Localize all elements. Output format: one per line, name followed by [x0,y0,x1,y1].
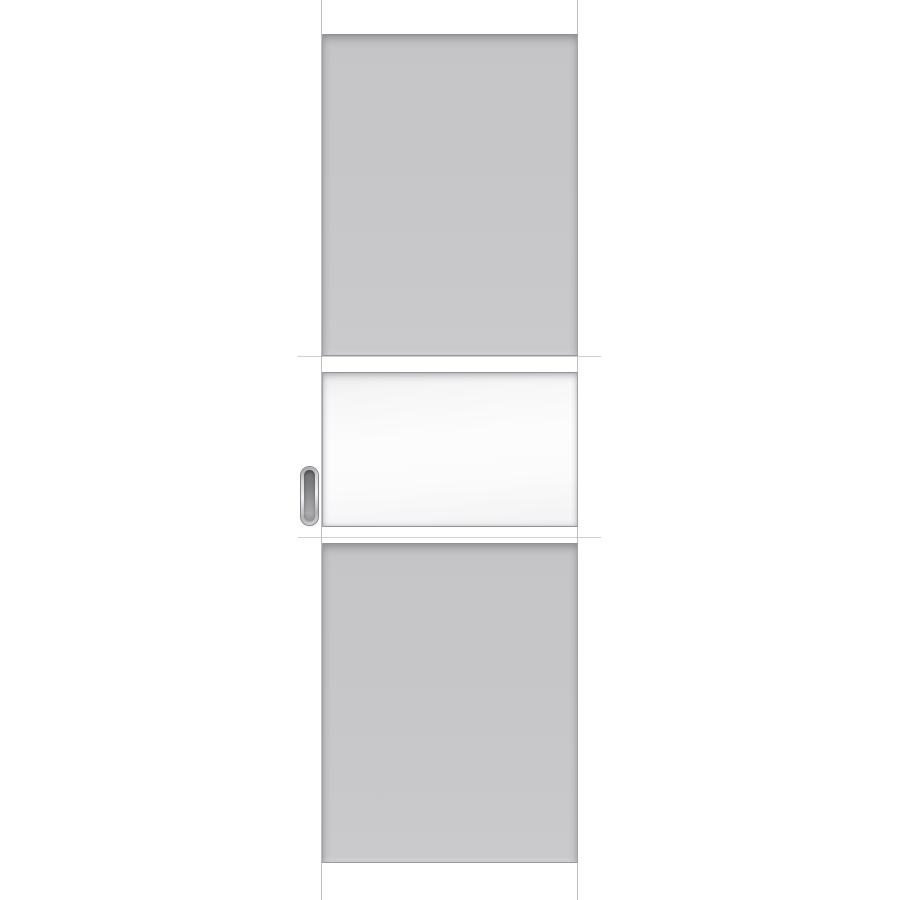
door-panel-lower [322,543,578,863]
door-bottom-rail [298,863,601,900]
product-image [0,0,900,900]
sliding-door-leaf [298,0,601,900]
lower-rail-joint [298,537,601,538]
flush-pull-handle [301,467,318,525]
handle-recess [304,470,315,522]
glass-insert-frame [322,372,578,527]
frosted-glass [323,373,577,526]
upper-rail-joint [298,356,601,357]
door-panel-upper [322,34,578,356]
door-top-rail [298,0,601,34]
